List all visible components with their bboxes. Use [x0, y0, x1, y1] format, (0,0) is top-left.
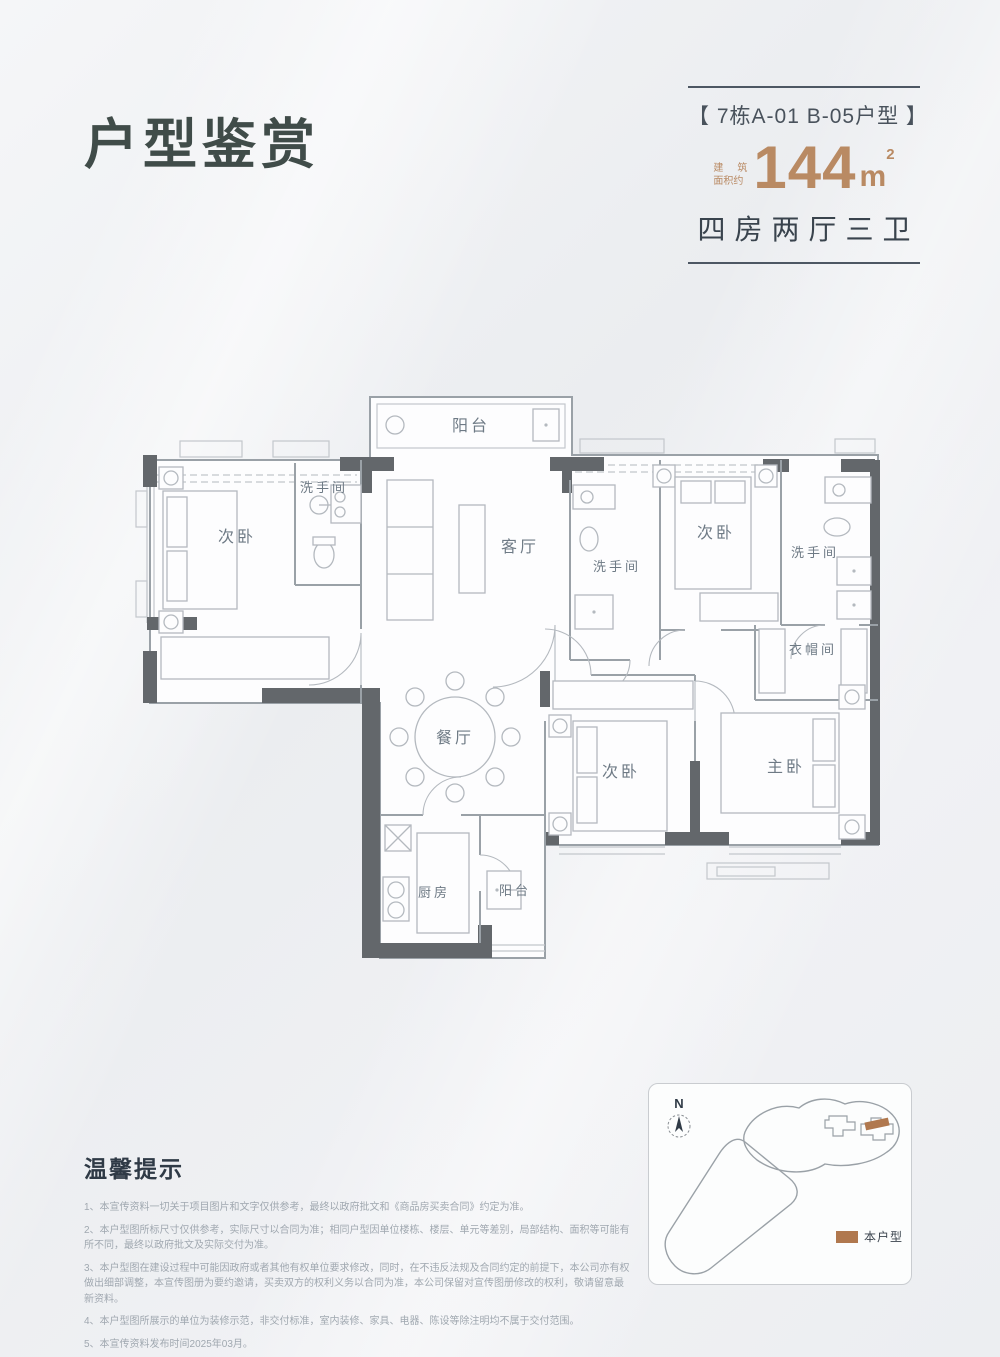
label-bath3: 洗手间: [791, 545, 839, 560]
header-rule-bottom: [688, 262, 920, 264]
area-prefix-char-1: 建: [713, 162, 723, 176]
page-title: 户型鉴赏: [84, 100, 320, 179]
label-dining: 餐厅: [436, 729, 474, 747]
label-bedroom2: 次卧: [697, 524, 735, 542]
header-rule-top: [688, 86, 920, 88]
floorplan-drawing: 阳台 洗手间 次卧 客厅 洗手间 次卧 洗手间 衣帽间 餐厅 次卧 主卧 厨房 …: [125, 385, 880, 970]
area-superscript: 2: [886, 146, 894, 163]
area-prefix-char-2: 筑: [737, 162, 747, 176]
area-unit: m2: [860, 160, 895, 194]
area-value: 144: [753, 138, 856, 198]
note-item: 3、本户型图在建设过程中可能因政府或者其他有权单位要求修改，同时，在不违反法规及…: [84, 1261, 632, 1308]
site-outline-lower: [665, 1139, 797, 1273]
area-row: 建 筑 面积约 144 m2: [688, 138, 920, 198]
label-bath1: 洗手间: [300, 480, 348, 495]
unit-label: 【 7栋A-01 B-05户型 】: [688, 100, 920, 130]
compass-icon: N: [668, 1096, 690, 1137]
label-living: 客厅: [501, 538, 539, 556]
label-master: 主卧: [767, 758, 805, 776]
sitemap-card: N 本户型: [648, 1083, 912, 1285]
compass-n-label: N: [674, 1096, 683, 1111]
note-item: 1、本宣传资料一切关于项目图片和文字仅供参考，最终以政府批文和《商品房买卖合同》…: [84, 1200, 632, 1216]
header-block: 【 7栋A-01 B-05户型 】 建 筑 面积约 144 m2 四房两厅三卫: [688, 86, 920, 264]
label-cloakroom: 衣帽间: [789, 642, 837, 657]
legend-swatch: [836, 1231, 858, 1243]
area-prefix: 建 筑 面积约: [713, 162, 747, 189]
sitemap-legend: 本户型: [836, 1229, 903, 1244]
legend-label: 本户型: [864, 1229, 903, 1244]
notes-title: 温馨提示: [84, 1150, 632, 1184]
label-bath2: 洗手间: [593, 559, 641, 574]
label-kitchen: 厨房: [418, 885, 450, 900]
label-balcony-top: 阳台: [452, 417, 490, 435]
highlighted-building: [864, 1118, 889, 1131]
building-footprints: [825, 1116, 893, 1140]
site-outline-upper: [744, 1099, 899, 1172]
area-prefix-line2: 面积约: [713, 175, 747, 189]
note-item: 4、本户型图所展示的单位为装修示范，非交付标准，室内装修、家具、电器、陈设等除注…: [84, 1314, 632, 1330]
label-balcony-bottom: 阳台: [499, 883, 531, 898]
notes-block: 温馨提示 1、本宣传资料一切关于项目图片和文字仅供参考，最终以政府批文和《商品房…: [84, 1150, 632, 1357]
note-item: 5、本宣传资料发布时间2025年03月。: [84, 1337, 632, 1353]
label-bedroom1: 次卧: [218, 528, 256, 546]
sitemap-drawing: N 本户型: [649, 1084, 909, 1282]
note-item: 2、本户型图所标尺寸仅供参考，实际尺寸以合同为准；相同户型因单位楼栋、楼层、单元…: [84, 1223, 632, 1254]
label-bedroom3: 次卧: [602, 763, 640, 781]
floorplan-poster: 户型鉴赏 【 7栋A-01 B-05户型 】 建 筑 面积约 144 m2 四房…: [0, 0, 1000, 1357]
layout-text: 四房两厅三卫: [688, 208, 920, 248]
